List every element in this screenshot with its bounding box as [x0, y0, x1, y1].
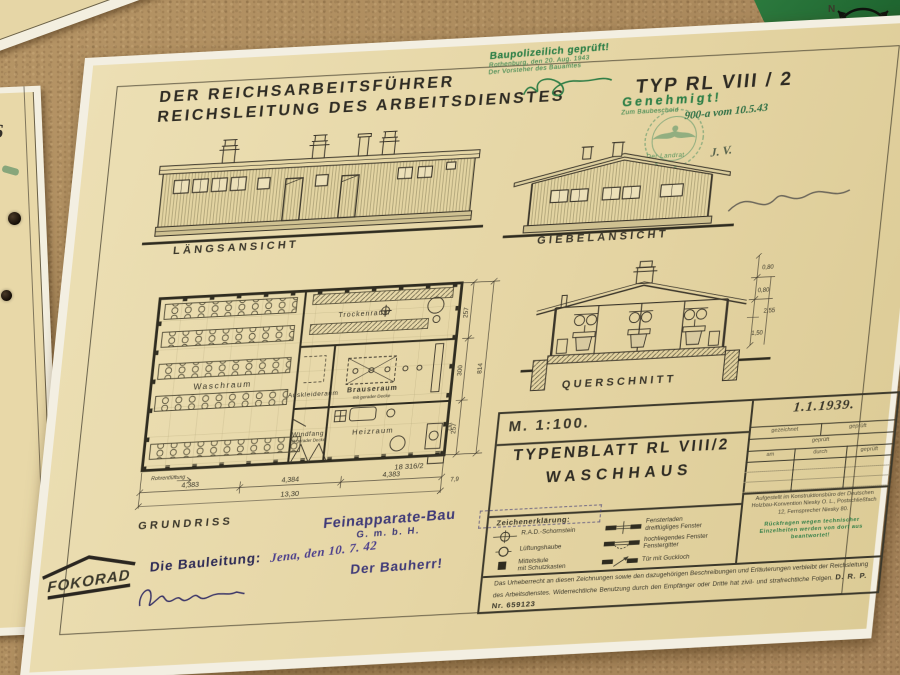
check-col-durch: durch	[794, 448, 847, 457]
legend-fensterladen-label: Fensterladen dreiflügliges Fenster	[645, 515, 703, 532]
title-block: M. 1:100. 1.1.1939. gezeichnet geprüft g…	[477, 391, 900, 614]
punch-hole	[8, 212, 21, 225]
dim-bottom-2: 4,384	[281, 476, 299, 484]
neighbor-sheet-paper	[0, 0, 180, 50]
section-dim-3: 2,55	[763, 308, 776, 315]
fensterladen-icon	[605, 520, 642, 535]
check-col-am: am	[746, 450, 795, 459]
check-table-row	[744, 464, 890, 473]
legend-hochfenster-label: hochliegendes Fenster Fenstergitter	[643, 533, 708, 551]
check-col-geprueft: geprüft	[846, 445, 893, 453]
section-dim-1: 0,80	[762, 265, 775, 272]
legend-schornstein-label: R.A.D.-Schornstein	[521, 527, 576, 537]
plan-drawing-number: 18 316/2	[394, 461, 424, 471]
dim-right-total: 814	[476, 362, 484, 374]
scale-label: M. 1:100.	[508, 414, 591, 435]
compass-n-label: N	[828, 4, 835, 15]
check-table-row	[743, 474, 889, 483]
dim-bottom-total: 13,30	[280, 489, 300, 499]
dim-right-2: 300	[456, 365, 464, 377]
legend-lueftungshaube-label: Lüftungshaube	[519, 543, 561, 552]
dim-annex: 2,61	[447, 422, 453, 432]
mittelsaeule-icon	[491, 559, 512, 573]
lueftungshaube-icon	[491, 545, 516, 559]
dim-right-1: 257	[462, 307, 470, 319]
laengsansicht-drawing	[139, 122, 496, 258]
office-note: Aufgestellt im Konstruktionsbüro der Deu…	[735, 485, 888, 563]
hochfenster-icon	[603, 537, 640, 553]
dim-bottom-3: 4,383	[382, 471, 400, 479]
plan-note-vent: Rohrentlüftung	[151, 474, 186, 482]
main-drawing-sheet: DER REICHSARBEITSFÜHRER REICHSLEITUNG DE…	[19, 13, 900, 675]
punch-hole	[1, 290, 12, 301]
green-signature-icon	[519, 66, 618, 105]
dim-small: 7,9	[450, 477, 460, 483]
legend-mittelsaeule-label: Mittelsäule mit Schutzkasten	[517, 556, 566, 573]
office-note-green: Rückfragen wegen technischer Einzelheite…	[744, 515, 878, 544]
date-label: 1.1.1939.	[750, 395, 898, 419]
section-dim-2: 0,80	[757, 288, 770, 295]
office-note-text: Aufgestellt im Konstruktionsbüro der Deu…	[751, 490, 877, 515]
legend-tuer-label: Tür mit Guckloch	[642, 553, 690, 563]
pencil-signature-icon	[723, 175, 857, 222]
schornstein-icon	[492, 530, 517, 544]
neighbor-sheet-number: /6	[0, 121, 4, 144]
dim-bottom-1: 4,383	[181, 482, 199, 490]
sheet-paper: DER REICHSARBEITSFÜHRER REICHSLEITUNG DE…	[29, 22, 900, 673]
section-dim-4: 1,50	[751, 331, 764, 338]
tuer-icon	[601, 554, 638, 569]
photo-of-blueprint: N S /6 DER REICHSARBEITSFÜHRER REICHSLEI…	[0, 0, 900, 675]
grundriss-drawing: Waschraum Trockenraum Auskleideraum Brau…	[132, 274, 525, 533]
bauleitung-signature-icon	[135, 576, 254, 618]
